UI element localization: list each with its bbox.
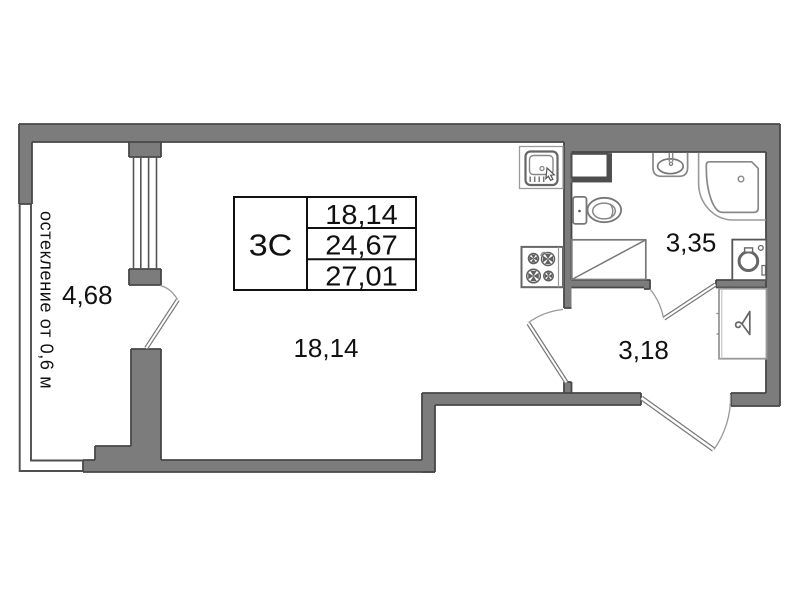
svg-text:4,68: 4,68 [62,280,113,310]
svg-text:18,14: 18,14 [325,199,398,230]
svg-text:3,18: 3,18 [618,335,669,365]
svg-text:остекление от 0,6 м: остекление от 0,6 м [37,211,57,389]
svg-text:27,01: 27,01 [325,261,398,292]
svg-text:3,35: 3,35 [666,228,717,258]
svg-text:3С: 3С [249,228,293,262]
svg-text:18,14: 18,14 [293,333,358,363]
svg-text:24,67: 24,67 [325,230,398,261]
